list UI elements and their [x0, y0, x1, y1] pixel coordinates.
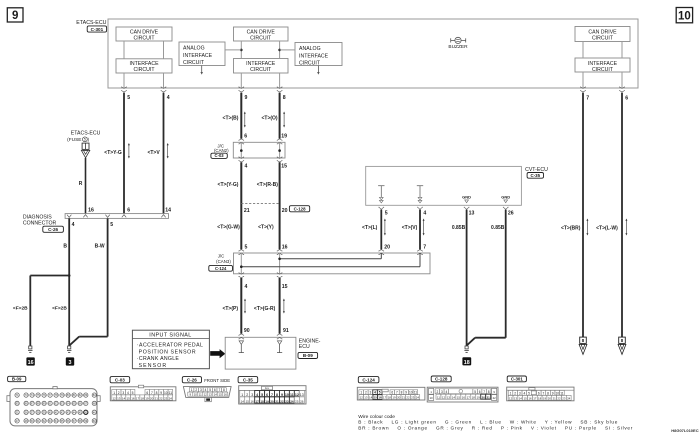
svg-text:15: 15 [457, 395, 461, 399]
svg-text:8: 8 [223, 388, 225, 392]
svg-text:17: 17 [255, 399, 259, 403]
svg-text:·ACCELERATOR PEDAL: ·ACCELERATOR PEDAL [137, 343, 203, 349]
svg-text:<F>2B: <F>2B [52, 305, 67, 311]
svg-text:12: 12 [295, 393, 299, 397]
svg-text:9: 9 [405, 391, 407, 395]
svg-text:12: 12 [442, 395, 446, 399]
svg-text:B: B [63, 244, 67, 250]
svg-text:8: 8 [276, 393, 278, 397]
svg-text:90: 90 [244, 328, 250, 334]
svg-text:12: 12 [204, 392, 208, 396]
svg-text:9: 9 [552, 391, 554, 395]
svg-text:20: 20 [397, 396, 401, 400]
svg-text:4: 4 [423, 210, 426, 216]
svg-text:3: 3 [370, 391, 372, 395]
svg-text:15: 15 [246, 399, 250, 403]
svg-text:6: 6 [391, 391, 393, 395]
svg-text:6: 6 [146, 391, 148, 395]
svg-text:5: 5 [132, 391, 134, 395]
svg-text:10: 10 [164, 391, 168, 395]
svg-text:1: 1 [241, 393, 243, 397]
svg-text:C-128: C-128 [435, 377, 448, 382]
svg-text:5: 5 [261, 393, 263, 397]
svg-text:5: 5 [84, 138, 86, 142]
svg-text:6: 6 [214, 388, 216, 392]
svg-text:17: 17 [467, 395, 471, 399]
svg-text:CONNECTOR: CONNECTOR [23, 221, 57, 227]
svg-text:GND: GND [462, 194, 471, 199]
svg-text:10: 10 [556, 391, 560, 395]
svg-text:3: 3 [441, 390, 443, 394]
svg-text:22: 22 [280, 399, 284, 403]
svg-text:7: 7 [396, 391, 398, 395]
svg-text:20: 20 [548, 397, 552, 401]
svg-text:16: 16 [131, 396, 135, 400]
svg-text:4: 4 [445, 390, 447, 394]
svg-text:2: 2 [514, 391, 516, 395]
svg-text:2: 2 [195, 388, 197, 392]
svg-text:7: 7 [218, 388, 220, 392]
svg-text:<T>(R-B): <T>(R-B) [257, 182, 278, 188]
svg-text:CIRCUIT: CIRCUIT [299, 61, 321, 67]
svg-text:15: 15 [219, 392, 223, 396]
svg-text:23: 23 [411, 396, 415, 400]
svg-text:<F>2B: <F>2B [13, 305, 28, 311]
svg-text:20: 20 [482, 395, 486, 399]
svg-text:24: 24 [416, 396, 420, 400]
svg-text:11: 11 [560, 391, 564, 395]
svg-text:CIRCUIT: CIRCUIT [133, 35, 155, 41]
svg-text:22: 22 [493, 396, 496, 400]
svg-text:26: 26 [508, 210, 514, 216]
svg-text:5: 5 [209, 388, 211, 392]
svg-text:1: 1 [360, 391, 362, 395]
svg-text:21: 21 [402, 396, 406, 400]
svg-text:20: 20 [282, 208, 288, 214]
svg-text:A-L: A-L [265, 386, 270, 390]
svg-text:18: 18 [260, 399, 264, 403]
svg-text:22: 22 [406, 396, 410, 400]
svg-text:(FUSE: (FUSE [67, 137, 81, 143]
svg-text:6: 6 [266, 393, 268, 397]
svg-text:14: 14 [214, 392, 218, 396]
svg-text:21: 21 [487, 395, 491, 399]
svg-text:11: 11 [290, 393, 294, 397]
svg-text:4: 4 [523, 391, 525, 395]
svg-text:16: 16 [528, 397, 532, 401]
svg-text:1: 1 [191, 388, 193, 392]
svg-text:24: 24 [169, 396, 173, 400]
svg-text:GND: GND [501, 194, 510, 199]
svg-text:4: 4 [374, 391, 376, 395]
svg-text:C-35: C-35 [243, 378, 253, 383]
svg-text:6: 6 [538, 391, 540, 395]
svg-text:11: 11 [169, 391, 173, 395]
svg-text:2: 2 [118, 391, 120, 395]
svg-text:CIRCUIT: CIRCUIT [592, 35, 614, 41]
svg-text:25: 25 [295, 399, 299, 403]
svg-text:6: 6 [127, 208, 130, 214]
svg-text:CIRCUIT: CIRCUIT [250, 35, 272, 41]
svg-text:20: 20 [270, 399, 274, 403]
svg-text:13: 13 [117, 396, 121, 400]
svg-text:19: 19 [281, 133, 287, 139]
svg-text:R: R [79, 181, 83, 187]
svg-text:6: 6 [479, 390, 481, 394]
svg-text:C-26: C-26 [48, 227, 58, 232]
svg-text:<T>(P): <T>(P) [222, 306, 238, 312]
svg-text:1: 1 [510, 391, 512, 395]
svg-text:C-301: C-301 [511, 377, 524, 382]
svg-text:14: 14 [519, 397, 523, 401]
svg-text:14: 14 [452, 395, 456, 399]
svg-text:H8G07L010EC: H8G07L010EC [671, 428, 698, 433]
svg-text:2: 2 [436, 390, 438, 394]
svg-text:7: 7 [151, 391, 153, 395]
svg-text:15: 15 [281, 163, 287, 169]
svg-text:<T>Y-G: <T>Y-G [104, 150, 122, 156]
svg-text:4: 4 [167, 95, 170, 101]
svg-text:21: 21 [275, 399, 279, 403]
svg-text:4: 4 [245, 163, 248, 169]
svg-text:10: 10 [409, 391, 413, 395]
svg-text:16: 16 [462, 395, 466, 399]
svg-text:4: 4 [256, 393, 258, 397]
svg-text:3: 3 [251, 393, 253, 397]
svg-text:14: 14 [122, 396, 126, 400]
svg-text:8: 8 [283, 95, 286, 101]
svg-text:B : Black LG : Light green: B : Black LG : Light green G : Green L :… [358, 419, 617, 424]
svg-text:22: 22 [557, 397, 561, 401]
svg-text:5: 5 [379, 391, 381, 395]
svg-text:5: 5 [528, 391, 530, 395]
svg-text:C-26: C-26 [187, 378, 197, 383]
svg-text:5: 5 [385, 210, 388, 216]
svg-text:<T>(B): <T>(B) [223, 115, 239, 121]
svg-text:7: 7 [586, 95, 589, 101]
svg-text:14: 14 [165, 208, 171, 214]
svg-text:17: 17 [533, 397, 537, 401]
svg-text:2: 2 [365, 391, 367, 395]
svg-text:16: 16 [251, 399, 255, 403]
svg-text:10: 10 [285, 393, 289, 397]
svg-text:CIRCUIT: CIRCUIT [183, 60, 205, 66]
svg-text:3: 3 [122, 391, 124, 395]
svg-text:9: 9 [160, 391, 162, 395]
svg-text:7: 7 [543, 391, 545, 395]
svg-text:15: 15 [282, 284, 288, 290]
svg-text:C-03: C-03 [215, 153, 225, 158]
svg-text:·CRANK ANGLE: ·CRANK ANGLE [137, 356, 180, 362]
svg-text:24: 24 [290, 399, 294, 403]
svg-text:12: 12 [360, 396, 364, 400]
svg-text:7: 7 [271, 393, 273, 397]
svg-text:3: 3 [69, 360, 72, 366]
svg-text:<T>(L-W): <T>(L-W) [596, 225, 618, 231]
svg-text:17: 17 [136, 396, 140, 400]
svg-text:13: 13 [447, 395, 451, 399]
svg-text:11: 11 [437, 395, 440, 399]
svg-text:BR : Brown O : Orange GR: BR : Brown O : Orange GR : Grey R : Red … [358, 425, 632, 430]
svg-text:18: 18 [388, 396, 392, 400]
svg-text:INTERFACE: INTERFACE [183, 53, 213, 59]
svg-text:7: 7 [423, 244, 426, 250]
svg-text:13: 13 [364, 396, 368, 400]
svg-text:13: 13 [300, 393, 304, 397]
svg-text:ETACS-ECU: ETACS-ECU [71, 131, 101, 137]
svg-text:BUZZER: BUZZER [448, 44, 468, 50]
svg-text:8: 8 [156, 391, 158, 395]
svg-text:18: 18 [472, 395, 476, 399]
svg-text:8: 8 [488, 390, 490, 394]
svg-text:<T>(G-R): <T>(G-R) [254, 306, 276, 312]
svg-text:CIRCUIT: CIRCUIT [133, 67, 155, 73]
svg-text:CIRCUIT: CIRCUIT [592, 67, 614, 73]
svg-text:18: 18 [141, 396, 145, 400]
svg-text:FRONT SIDE: FRONT SIDE [204, 378, 230, 383]
svg-text:26: 26 [300, 399, 304, 403]
svg-text:CIRCUIT: CIRCUIT [250, 67, 272, 73]
svg-text:14: 14 [369, 396, 373, 400]
svg-text:19: 19 [477, 395, 481, 399]
svg-text:4: 4 [127, 391, 129, 395]
svg-text:19: 19 [392, 396, 396, 400]
svg-text:ANALOG: ANALOG [299, 46, 321, 52]
svg-text:6: 6 [244, 133, 247, 139]
svg-text:<T>(BR): <T>(BR) [561, 225, 581, 231]
svg-text:9: 9 [281, 393, 283, 397]
svg-text:11: 11 [199, 392, 202, 396]
svg-text:ECU: ECU [299, 344, 310, 350]
svg-text:13: 13 [209, 392, 213, 396]
svg-text:10: 10 [430, 396, 433, 400]
svg-text:<T>(Y): <T>(Y) [258, 224, 274, 230]
svg-text:12: 12 [112, 396, 116, 400]
svg-text:15: 15 [524, 397, 528, 401]
svg-text:19: 19 [145, 396, 149, 400]
svg-text:C-35: C-35 [531, 173, 541, 178]
svg-text:15: 15 [374, 396, 378, 400]
svg-text:10: 10 [678, 11, 691, 23]
svg-text:10: 10 [194, 392, 198, 396]
svg-text:5: 5 [110, 222, 113, 228]
svg-text:19: 19 [265, 399, 269, 403]
svg-text:14: 14 [241, 399, 245, 403]
svg-text:0.85B: 0.85B [452, 225, 466, 231]
svg-text:16: 16 [28, 360, 34, 366]
svg-text:13: 13 [514, 397, 518, 401]
svg-text:13: 13 [469, 210, 475, 216]
svg-text:4: 4 [245, 284, 248, 290]
svg-text:<T>(O): <T>(O) [261, 115, 277, 121]
svg-text:<T>(L): <T>(L) [362, 225, 378, 231]
svg-text:INTERFACE: INTERFACE [299, 53, 329, 59]
svg-text:9: 9 [245, 95, 248, 101]
svg-text:<T>(Y-G): <T>(Y-G) [218, 182, 239, 188]
svg-text:<T>(V): <T>(V) [402, 225, 418, 231]
svg-text:17: 17 [383, 396, 387, 400]
svg-text:C-124: C-124 [215, 266, 227, 271]
svg-text:21: 21 [244, 208, 250, 214]
svg-text:5: 5 [474, 390, 476, 394]
svg-text:POSITION SENSOR: POSITION SENSOR [139, 349, 196, 355]
svg-text:<T>V: <T>V [147, 150, 160, 156]
svg-text:21: 21 [155, 396, 159, 400]
svg-text:J/C: J/C [218, 254, 225, 259]
svg-text:23: 23 [285, 399, 289, 403]
svg-text:16: 16 [282, 244, 288, 250]
svg-text:91: 91 [283, 328, 289, 334]
svg-text:15: 15 [127, 396, 131, 400]
svg-text:ETACS-ECU: ETACS-ECU [76, 20, 106, 26]
svg-text:22: 22 [159, 396, 163, 400]
svg-text:C-128: C-128 [294, 207, 307, 212]
svg-text:0.85B: 0.85B [491, 225, 505, 231]
svg-text:18: 18 [538, 397, 542, 401]
svg-text:19: 19 [543, 397, 547, 401]
svg-text:16: 16 [88, 208, 94, 214]
svg-text:<T>(G-W): <T>(G-W) [217, 224, 240, 230]
svg-text:5: 5 [127, 95, 130, 101]
svg-text:7: 7 [483, 390, 485, 394]
svg-text:11: 11 [414, 391, 418, 395]
svg-text:C-124: C-124 [362, 378, 375, 383]
svg-text:9: 9 [12, 10, 18, 22]
svg-text:C-301: C-301 [91, 27, 104, 32]
svg-text:16: 16 [378, 396, 382, 400]
svg-text:SENSOR: SENSOR [139, 363, 167, 369]
svg-text:20: 20 [384, 244, 390, 250]
svg-text:1: 1 [113, 391, 115, 395]
svg-text:23: 23 [562, 397, 566, 401]
svg-text:8: 8 [547, 391, 549, 395]
svg-text:C-03: C-03 [115, 378, 125, 383]
svg-text:4: 4 [72, 222, 75, 228]
svg-text:18: 18 [464, 360, 470, 366]
svg-text:20: 20 [150, 396, 154, 400]
svg-text:23: 23 [164, 396, 168, 400]
svg-text:21: 21 [553, 397, 557, 401]
svg-text:24: 24 [567, 397, 571, 401]
svg-text:ANALOG: ANALOG [183, 46, 205, 52]
svg-text:6: 6 [625, 95, 628, 101]
svg-text:B-09: B-09 [303, 353, 313, 358]
svg-text:INPUT SIGNAL: INPUT SIGNAL [149, 333, 191, 339]
svg-text:B-W: B-W [95, 244, 105, 250]
svg-text:B-09: B-09 [12, 376, 22, 381]
svg-text:4: 4 [205, 388, 207, 392]
svg-text:3: 3 [519, 391, 521, 395]
svg-text:5: 5 [245, 244, 248, 250]
svg-text:16: 16 [224, 392, 228, 396]
svg-text:(CAN3): (CAN3) [216, 259, 231, 264]
svg-text:12: 12 [509, 397, 513, 401]
svg-text:8: 8 [401, 391, 403, 395]
svg-text:2: 2 [246, 393, 248, 397]
svg-text:3: 3 [200, 388, 202, 392]
